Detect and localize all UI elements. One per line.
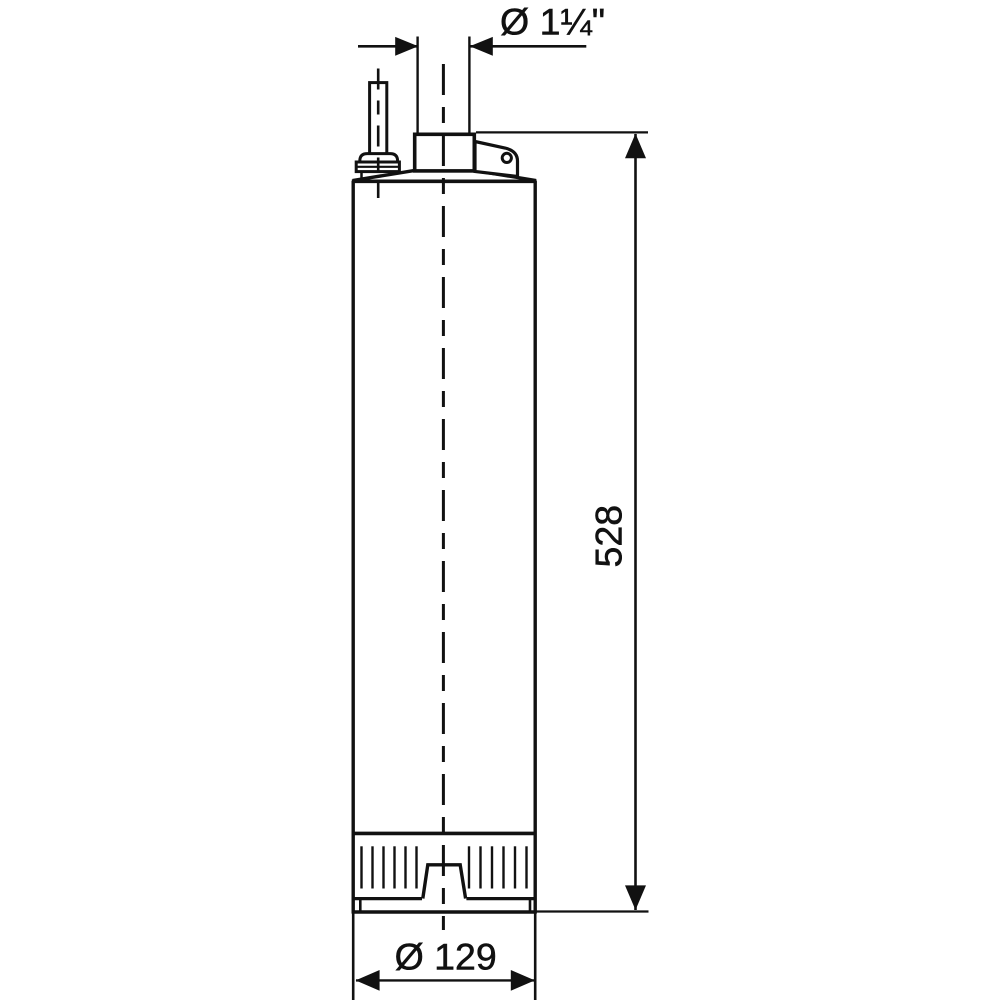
svg-text:Ø 1¼": Ø 1¼" — [500, 0, 605, 42]
svg-text:Ø 129: Ø 129 — [395, 936, 497, 978]
svg-text:528: 528 — [588, 505, 630, 568]
